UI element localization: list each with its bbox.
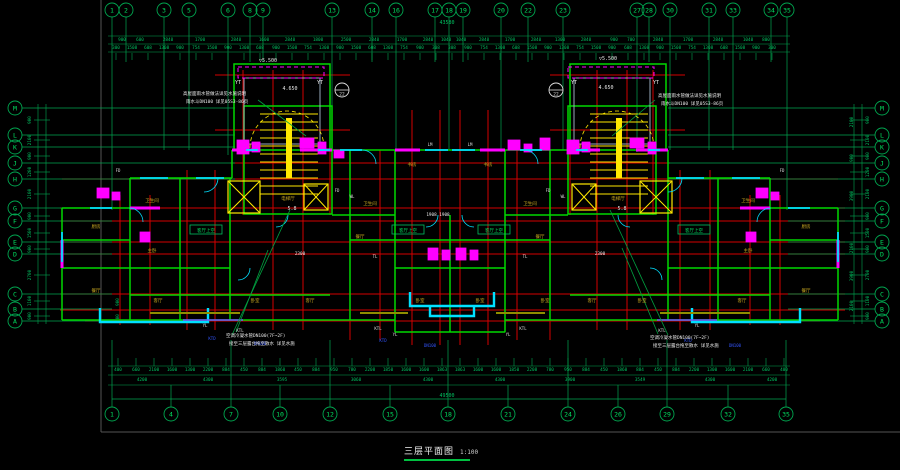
room-label: 卫生间	[145, 197, 159, 204]
grid-bubble-label: D	[13, 250, 17, 258]
dim-text-side: 900	[865, 152, 871, 160]
grid-bubble-label: D	[880, 250, 884, 258]
pipe-code-label: LM	[468, 142, 473, 147]
pipe-code-label: TL	[373, 254, 378, 259]
dim-text-bottom: 660	[762, 367, 770, 373]
duct-code-label: DN100	[729, 343, 742, 348]
leader-line	[232, 210, 290, 335]
dim-text-top: 2840	[163, 37, 174, 43]
fixture	[237, 140, 249, 154]
dim-total-bottom: 49500	[439, 393, 454, 399]
room-label: 卧室	[251, 297, 260, 304]
dim-text-bottom: 4200	[767, 377, 778, 383]
dim-text-bottom: 2100	[743, 367, 754, 373]
dim-text-top: 2500	[341, 37, 352, 43]
dim-text-bottom: 780	[348, 367, 356, 373]
room-label: 卧室	[476, 297, 485, 304]
dim-text-top: 900	[416, 45, 424, 51]
dim-text-top: 308	[448, 45, 456, 51]
grid-bubble-label: 35	[783, 6, 791, 14]
dim-text-side: 900	[865, 312, 871, 320]
dim-text-bottom: 4300	[423, 377, 434, 383]
cad-canvas[interactable]: 1235689131416171819202223272830313334351…	[0, 0, 900, 470]
dim-text-bottom: 4300	[705, 377, 716, 383]
dim-text-bottom: 660	[132, 367, 140, 373]
room-label: 餐厅	[92, 287, 101, 294]
grid-bubble-label: F	[880, 217, 884, 225]
dim-text-side: 1500	[27, 227, 33, 238]
grid-bubble-label: K	[880, 143, 884, 151]
dim-text-top: 900	[610, 37, 618, 43]
dim-text-bottom: 4200	[137, 377, 148, 383]
pipe-code-label: YL	[506, 332, 511, 337]
grid-bubble-label: H	[880, 175, 884, 183]
grid-bubble-label: E	[880, 238, 884, 246]
room-label: 餐厅	[802, 287, 811, 294]
room-label: 卧室	[416, 297, 425, 304]
pipe-code-label: KTL	[519, 326, 527, 331]
level-mark: ▽5.500	[259, 58, 277, 64]
grid-bubble-label: 21	[504, 410, 512, 418]
dim-text-top: 900	[608, 45, 616, 51]
dim-text-top: 900	[656, 45, 664, 51]
dim-text-bottom: 884	[312, 367, 320, 373]
grid-bubble-label: 32	[724, 410, 732, 418]
grid-bubble-label: B	[880, 305, 884, 313]
dim-text-bottom: 1600	[491, 367, 502, 373]
dim-text-top: 608	[144, 45, 152, 51]
fixture	[508, 140, 520, 150]
dim-text-top: 1700	[195, 37, 206, 43]
dim-text-top: 1508	[287, 45, 298, 51]
grid-bubble-label: 2	[124, 6, 128, 14]
grid-bubble-label: 6	[226, 6, 230, 14]
dim-text-side: 900	[27, 152, 33, 160]
dim-text-top: 754	[576, 45, 584, 51]
door-swing-arc	[362, 150, 376, 164]
dim-text-top: 608	[720, 45, 728, 51]
pipe-code-label: WL	[350, 194, 355, 199]
dim-text-top: 300	[112, 45, 120, 51]
dim-text-top: 754	[688, 45, 696, 51]
duct-code-label: KTD	[379, 338, 387, 343]
dim-text-top: 1040	[456, 37, 467, 43]
grid-bubble-label: E	[13, 238, 17, 246]
dim-text-bottom: 950	[564, 367, 572, 373]
dim-text-bottom: 450	[240, 367, 248, 373]
dim-text-top: 1508	[351, 45, 362, 51]
grid-bubble-label: 27	[633, 6, 641, 14]
grid-bubble-label: J	[880, 159, 884, 167]
dim-text-side: 2100	[849, 300, 855, 311]
dim-text-bottom: 1600	[725, 367, 736, 373]
grid-bubble-label: 10	[276, 410, 284, 418]
dim-text-top: 2840	[531, 37, 542, 43]
grid-bubble-label: K	[13, 143, 17, 151]
dim-text-top: 2840	[581, 37, 592, 43]
dim-text-top: 1508	[127, 45, 138, 51]
annotation-text: 接至三层露台拖至散水 详见水施	[653, 342, 719, 349]
room-label: 电梯厅	[281, 195, 295, 202]
grid-bubble-label: L	[880, 131, 884, 139]
grid-bubble-label: 20	[497, 6, 505, 14]
fixture	[97, 188, 109, 198]
dim-text-bottom: 450	[600, 367, 608, 373]
dim-text-bottom: 1850	[383, 367, 394, 373]
dim-text-bottom: 1863	[437, 367, 448, 373]
pipe-code-label: FD	[546, 188, 551, 193]
level-mark: YT	[317, 80, 323, 86]
grid-bubble-label: 1	[110, 6, 114, 14]
grid-bubble-label: 23	[559, 6, 567, 14]
dim-text-top: 1600	[259, 37, 270, 43]
room-label: 卫生间	[741, 197, 755, 204]
pipe-code-label: FD	[335, 188, 340, 193]
dim-text-top: 1300	[555, 37, 566, 43]
room-label: 主卧	[744, 247, 753, 254]
dim-text-top: 1508	[671, 45, 682, 51]
dim-text-top: 1308	[239, 45, 250, 51]
level-mark: YT	[653, 80, 659, 86]
dim-text-bottom: 1600	[419, 367, 430, 373]
fixture	[756, 188, 768, 198]
pipe-code-label: TL	[523, 254, 528, 259]
dim-text-bottom: 400	[780, 367, 788, 373]
wall-rect	[234, 64, 330, 150]
level-mark: ▽5.500	[599, 56, 617, 62]
fixture	[456, 248, 466, 260]
grid-bubble-label: 15	[386, 410, 394, 418]
dim-text-bottom: 3900	[565, 377, 576, 383]
dim-text-top: 2840	[285, 37, 296, 43]
grid-bubble-label: B	[13, 305, 17, 313]
cad-viewport: 1235689131416171819202223272830313334351…	[0, 0, 900, 470]
void-label: 客厅上空	[685, 227, 703, 234]
fixture	[112, 192, 120, 200]
roof-dashed-outline	[238, 67, 324, 78]
pipe-code-label: FD	[116, 168, 121, 173]
dim-text-side: 900	[115, 298, 121, 306]
dim-text-bottom: 450	[654, 367, 662, 373]
dim-text-bottom: 2208	[527, 367, 538, 373]
dim-text-side: 1200	[865, 166, 871, 177]
dim-text-top: 1700	[683, 37, 694, 43]
dim-text-top: 608	[256, 45, 264, 51]
level-mark: 4.650	[598, 85, 613, 91]
grid-bubble-label: 28	[645, 6, 653, 14]
dim-text-bottom: 884	[672, 367, 680, 373]
grid-bubble-label: 19	[459, 6, 467, 14]
fixture	[746, 232, 756, 242]
stair-rail	[286, 118, 292, 178]
grid-bubble-label: 12	[326, 410, 334, 418]
room-label: 书房	[408, 161, 417, 168]
grid-bubble-label: 35	[782, 410, 790, 418]
dim-text-top: 1308	[639, 45, 650, 51]
annotation-text: 高屋面雨水管做法详见水施说明	[658, 92, 721, 99]
dim-text-top: 900	[544, 45, 552, 51]
grid-bubble-label: 16	[392, 6, 400, 14]
dim-text-top: 300	[768, 45, 776, 51]
dim-text-side: 900	[27, 245, 33, 253]
dim-text-bottom: 1600	[473, 367, 484, 373]
level-mark: 5.8	[617, 206, 626, 212]
dim-text-top: 700	[627, 37, 635, 43]
dim-text-side: 900	[27, 312, 33, 320]
dim-text-top: 1308	[559, 45, 570, 51]
dim-text-top: 608	[624, 45, 632, 51]
dim-text-bottom: 884	[636, 367, 644, 373]
dim-text-top: 608	[368, 45, 376, 51]
annotation-text: 雨水斗DN100 详见05S3-86页	[186, 98, 249, 105]
dim-text-top: 2840	[369, 37, 380, 43]
title-underline	[404, 459, 470, 461]
pipe-code-label: FD	[780, 168, 785, 173]
grid-bubble-label: C	[13, 290, 17, 298]
dim-text-top: 900	[272, 45, 280, 51]
fixture	[428, 248, 438, 260]
fixture	[300, 138, 314, 148]
grid-bubble-label: 18	[444, 410, 452, 418]
fixture	[318, 142, 326, 154]
pipe-code-label: LM	[428, 142, 433, 147]
fixture	[442, 250, 450, 260]
grid-bubble-label: 24	[564, 410, 572, 418]
dim-text-bottom: 3549	[635, 377, 646, 383]
drawing-title: 三层平面图1:100	[404, 444, 544, 457]
dim-text-top: 2840	[653, 37, 664, 43]
dim-text-side: 900	[865, 212, 871, 220]
grid-bubble-label: 17	[431, 6, 439, 14]
fixture	[567, 140, 579, 154]
grid-bubble-label: 30	[666, 6, 674, 14]
grid-bubble-label: 1	[110, 410, 114, 418]
dim-text-side: 1100	[27, 295, 33, 306]
dim-text-side: 3900	[849, 270, 855, 281]
door-swing-arc	[238, 268, 250, 280]
fixture	[648, 142, 656, 154]
dim-text-bottom: 4300	[495, 377, 506, 383]
dim-text-top: 1508	[207, 45, 218, 51]
dim-text-side: 900	[849, 154, 855, 162]
level-mark: 5.8	[287, 206, 296, 212]
door-swing-arc	[204, 178, 218, 192]
dim-text-side: 2100	[27, 134, 33, 145]
grid-bubble-label: 3	[162, 6, 166, 14]
fixture	[771, 192, 779, 200]
pipe-code-label: WL	[561, 194, 566, 199]
dim-text-bottom: 2100	[149, 367, 160, 373]
dim-text-side: 2100	[849, 116, 855, 127]
grid-bubble-label: G	[13, 204, 17, 212]
room-label: 客厅	[588, 297, 597, 304]
pipe-code-label: YL	[203, 323, 208, 328]
grid-bubble-label: A	[13, 317, 17, 325]
grid-bubble-label: C	[880, 290, 884, 298]
level-mark: 4.650	[282, 86, 297, 92]
annotation-text: 雨水斗DN100 详见05S3-86页	[661, 100, 724, 107]
pipe-code-label: KTL	[374, 326, 382, 331]
dim-text-bottom: 950	[330, 367, 338, 373]
dim-text-side: 900	[27, 116, 33, 124]
annotation-text: 空调冷凝水管DN100(7F~2F)	[226, 332, 286, 339]
dim-text-side: 2100	[849, 242, 855, 253]
dim-text-bottom: 1300	[185, 367, 196, 373]
dim-text-top: 900	[176, 45, 184, 51]
room-label: 主卧	[148, 247, 157, 254]
dim-text-top: 1308	[383, 45, 394, 51]
grid-bubble-label: F	[13, 217, 17, 225]
room-label: 客厅	[738, 297, 747, 304]
dim-text-top: 308	[432, 45, 440, 51]
grid-bubble-label: 18	[445, 6, 453, 14]
door-swing-arc	[129, 208, 143, 222]
fixture	[334, 150, 344, 158]
inner-dim-text: 1908 1908	[426, 212, 450, 218]
level-mark: YT	[235, 80, 241, 86]
grid-bubble-label: 31	[705, 6, 713, 14]
stair-rail	[616, 118, 622, 178]
dim-total-top: 43580	[439, 20, 454, 26]
dim-text-side: 1500	[865, 227, 871, 238]
dim-text-top: 1508	[591, 45, 602, 51]
dim-text-top: 900	[464, 45, 472, 51]
grid-bubble-label: 22	[524, 6, 532, 14]
annotation-text: 接至三层露台拖至散水 详见水施	[229, 340, 295, 347]
duct-code-label: DN100	[424, 343, 437, 348]
dim-text-bottom: 4300	[203, 377, 214, 383]
grid-bubble-label: 8	[248, 6, 252, 14]
door-swing-arc	[650, 268, 662, 280]
dim-text-side: 2100	[865, 134, 871, 145]
room-label: 卫生间	[363, 200, 377, 207]
grid-bubble-label: L	[13, 131, 17, 139]
dim-text-bottom: 400	[114, 367, 122, 373]
dim-text-top: 1040	[743, 37, 754, 43]
dim-text-top: 2840	[423, 37, 434, 43]
roof-dashed-outline	[568, 67, 654, 78]
room-label: 厨房	[92, 223, 101, 230]
dim-text-top: 1800	[313, 37, 324, 43]
room-label: 客厅	[154, 297, 163, 304]
grid-bubble-label: 9	[261, 6, 265, 14]
dim-text-bottom: 2208	[365, 367, 376, 373]
dim-text-bottom: 1860	[617, 367, 628, 373]
dim-text-bottom: 1850	[509, 367, 520, 373]
dim-text-top: 900	[752, 45, 760, 51]
inner-dim-text: 2300	[595, 251, 606, 257]
annotation-text: 高屋面雨水管做法详见水施说明	[183, 90, 246, 97]
grid-bubble-label: 7	[229, 410, 233, 418]
dim-text-top: 1308	[319, 45, 330, 51]
fixture	[470, 250, 478, 260]
fixture	[140, 232, 150, 242]
grid-bubble-label: 14	[368, 6, 376, 14]
inner-dim-text: 2300	[295, 251, 306, 257]
void-label: 客厅上空	[399, 227, 417, 234]
room-label: 卧室	[638, 297, 647, 304]
dim-text-side: 1100	[865, 295, 871, 306]
dim-text-bottom: 884	[258, 367, 266, 373]
dim-text-bottom: 1300	[707, 367, 718, 373]
dim-text-top: 608	[512, 45, 520, 51]
grid-bubble-label: 34	[767, 6, 775, 14]
drawing-title-text: 三层平面图	[404, 447, 454, 457]
dim-text-bottom: 1863	[455, 367, 466, 373]
grid-bubble-label: 29	[663, 410, 671, 418]
pipe-code-label: KTL	[658, 328, 666, 333]
detail-ref-number: 22	[553, 92, 559, 98]
void-label: 客厅上空	[197, 227, 215, 234]
room-label: 餐厅	[356, 233, 365, 240]
dim-text-top: 1040	[441, 37, 452, 43]
door-swing-arc	[757, 208, 771, 222]
grid-bubble-label: 33	[729, 6, 737, 14]
dim-text-bottom: 1600	[167, 367, 178, 373]
dim-text-top: 600	[136, 37, 144, 43]
dim-text-top: 1308	[495, 45, 506, 51]
dim-text-side: 1200	[27, 166, 33, 177]
annotation-text: 空调冷凝水管DN100(7F~2F)	[650, 334, 710, 341]
pipe-code-label: KTL	[236, 328, 244, 333]
dim-text-top: 900	[224, 45, 232, 51]
dim-text-bottom: 1600	[401, 367, 412, 373]
dim-text-top: 800	[762, 37, 770, 43]
room-label: 厨房	[802, 223, 811, 230]
grid-bubble-label: 26	[614, 410, 622, 418]
grid-bubble-label: M	[880, 104, 884, 112]
dim-text-top: 1508	[735, 45, 746, 51]
fixture	[540, 138, 550, 150]
duct-code-label: KTD	[208, 336, 216, 341]
dim-text-top: 754	[400, 45, 408, 51]
detail-ref-number: 22	[339, 92, 345, 98]
dim-text-top: 1700	[505, 37, 516, 43]
room-label: 书房	[484, 161, 493, 168]
dim-text-bottom: 780	[546, 367, 554, 373]
dim-text-top: 754	[304, 45, 312, 51]
grid-bubble-label: G	[880, 204, 884, 212]
dim-text-side: 3900	[849, 190, 855, 201]
pipe-code-label: YL	[393, 332, 398, 337]
balcony-outline	[430, 306, 474, 316]
fixture	[630, 138, 644, 148]
dim-text-top: 754	[480, 45, 488, 51]
grid-bubble-label: A	[880, 317, 884, 325]
dim-text-bottom: 3060	[351, 377, 362, 383]
dim-text-top: 2840	[231, 37, 242, 43]
dim-text-bottom: 884	[582, 367, 590, 373]
level-mark: YT	[571, 80, 577, 86]
grid-bubble-label: 13	[328, 6, 336, 14]
dim-text-side: 900	[865, 245, 871, 253]
dim-text-bottom: 1860	[275, 367, 286, 373]
dim-text-top: 754	[192, 45, 200, 51]
dim-text-bottom: 2200	[203, 367, 214, 373]
dim-text-top: 900	[118, 37, 126, 43]
dim-text-bottom: 2200	[689, 367, 700, 373]
room-label: 卫生间	[523, 200, 537, 207]
grid-bubble-label: M	[13, 104, 17, 112]
pipe-code-label: YL	[695, 323, 700, 328]
drawing-scale: 1:100	[460, 449, 478, 456]
dim-text-top: 2840	[479, 37, 490, 43]
room-label: 电梯厅	[611, 195, 625, 202]
room-label: 餐厅	[536, 233, 545, 240]
dim-text-side: 900	[27, 212, 33, 220]
dim-text-top: 1508	[527, 45, 538, 51]
dim-text-bottom: 3595	[277, 377, 288, 383]
